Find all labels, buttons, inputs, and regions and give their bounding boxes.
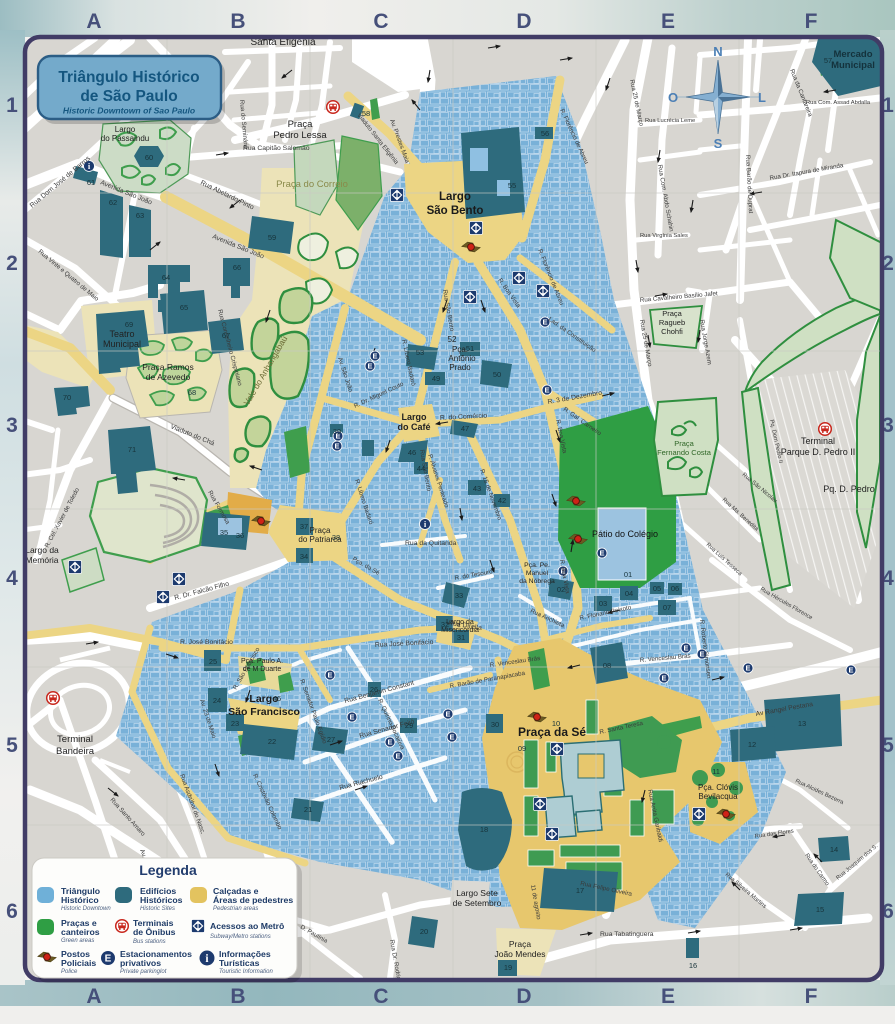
svg-text:Pátio do Colégio: Pátio do Colégio [592,529,658,539]
svg-text:São Francisco: São Francisco [228,706,300,718]
svg-text:14: 14 [830,845,838,854]
svg-text:Subway/Metro stations: Subway/Metro stations [210,934,271,940]
svg-text:08: 08 [603,661,611,670]
svg-text:56: 56 [541,129,549,138]
svg-text:6: 6 [6,900,18,923]
svg-text:06: 06 [671,584,679,593]
svg-text:de Setembro: de Setembro [453,898,502,908]
svg-text:Rua Com. Assad Abdalla: Rua Com. Assad Abdalla [806,100,871,106]
svg-text:João Mendes: João Mendes [494,949,545,959]
svg-text:Private parkinglot: Private parkinglot [120,969,167,975]
svg-text:O: O [668,90,678,105]
svg-text:D: D [516,10,531,33]
svg-text:F: F [805,10,818,33]
svg-text:Historic Downtown of Sao Paulo: Historic Downtown of Sao Paulo [63,106,195,116]
svg-text:21: 21 [304,805,312,814]
svg-text:Rua da Quitanda: Rua da Quitanda [405,540,457,547]
svg-text:16: 16 [689,961,697,970]
svg-text:49: 49 [432,374,440,383]
svg-text:47: 47 [461,424,469,433]
svg-text:70: 70 [63,393,71,402]
svg-text:S: S [714,136,723,151]
svg-text:29: 29 [405,721,413,730]
svg-text:1: 1 [6,94,18,117]
svg-text:E: E [661,985,675,1008]
svg-text:07: 07 [663,603,671,612]
svg-text:34: 34 [300,552,308,561]
svg-text:09: 09 [518,744,526,753]
svg-text:59: 59 [268,233,276,242]
svg-text:Teatro: Teatro [109,329,134,339]
svg-text:67: 67 [222,331,230,340]
svg-text:57: 57 [824,56,832,65]
svg-text:15: 15 [816,905,824,914]
svg-text:30: 30 [491,720,499,729]
svg-text:17: 17 [576,886,584,895]
svg-text:F: F [805,985,818,1008]
svg-text:58: 58 [362,109,370,118]
svg-text:privativos: privativos [120,958,161,968]
svg-text:36: 36 [236,531,244,540]
svg-text:60: 60 [145,153,153,162]
svg-text:63: 63 [136,211,144,220]
svg-text:01: 01 [624,570,632,579]
svg-text:Policiais: Policiais [61,958,96,968]
svg-text:da Nóbrega: da Nóbrega [519,578,555,585]
svg-text:C: C [373,10,388,33]
svg-text:2: 2 [6,252,18,275]
svg-text:22: 22 [268,737,276,746]
svg-text:de Azevedo: de Azevedo [146,372,191,382]
svg-text:Largo Sete: Largo Sete [456,888,498,898]
svg-text:12: 12 [748,740,756,749]
svg-text:02: 02 [557,585,565,594]
svg-text:Pça. Clóvis: Pça. Clóvis [698,783,738,792]
svg-text:Acessos ao Metrô: Acessos ao Metrô [210,921,284,931]
svg-text:B: B [230,985,245,1008]
svg-text:10: 10 [552,719,560,728]
svg-text:Praça do Correio: Praça do Correio [276,179,348,190]
svg-text:27: 27 [327,735,335,744]
svg-text:Touristic Information: Touristic Information [219,969,273,975]
svg-text:05: 05 [653,584,661,593]
svg-text:42: 42 [498,496,506,505]
svg-text:Históricos: Históricos [140,895,183,905]
svg-text:64: 64 [162,273,170,282]
svg-text:Terminal: Terminal [801,436,835,446]
svg-text:Pedestrian areas: Pedestrian areas [213,906,258,912]
svg-text:A: A [86,10,101,33]
svg-text:Rua Tabatinguera: Rua Tabatinguera [600,931,654,938]
svg-text:Pq. D. Pedro: Pq. D. Pedro [823,484,875,494]
svg-text:R. José Bonifácio: R. José Bonifácio [180,639,233,646]
svg-text:24: 24 [213,696,221,705]
svg-text:32: 32 [441,620,449,629]
svg-text:Rua Lucrécia Leme: Rua Lucrécia Leme [645,118,695,124]
svg-text:65: 65 [180,303,188,312]
svg-text:do Café: do Café [397,422,430,432]
svg-text:Praça: Praça [310,526,331,535]
svg-text:Praça Ramos: Praça Ramos [142,362,194,372]
svg-text:20: 20 [420,927,428,936]
svg-text:71: 71 [128,445,136,454]
svg-text:Chohfi: Chohfi [661,327,683,336]
svg-text:Áreas de pedestres: Áreas de pedestres [213,895,293,905]
svg-text:Police: Police [61,969,78,975]
svg-text:de São Paulo: de São Paulo [80,88,177,105]
svg-text:Municipal: Municipal [831,60,875,71]
svg-text:Terminal: Terminal [57,734,93,745]
svg-text:50: 50 [493,370,501,379]
svg-text:19: 19 [504,963,512,972]
svg-text:35: 35 [220,528,228,537]
svg-text:37: 37 [300,522,308,531]
svg-text:Turísticas: Turísticas [219,958,260,968]
svg-text:46: 46 [273,694,281,703]
svg-text:Bevilacqua: Bevilacqua [698,792,738,801]
svg-text:Praça: Praça [288,119,314,130]
svg-text:Rua Virgínia Sales: Rua Virgínia Sales [640,233,688,239]
svg-text:Parque D. Pedro II: Parque D. Pedro II [781,447,856,457]
svg-text:Praça: Praça [674,439,694,448]
svg-text:Bandeira: Bandeira [56,746,95,757]
svg-text:03: 03 [599,599,607,608]
svg-text:44: 44 [417,464,425,473]
svg-text:L: L [758,90,766,105]
svg-text:62: 62 [109,198,117,207]
svg-text:Prado: Prado [449,363,471,372]
svg-text:Legenda: Legenda [139,862,197,878]
svg-text:Pedro Lessa: Pedro Lessa [273,130,327,141]
svg-text:Historic Downtown: Historic Downtown [61,906,111,912]
svg-text:46: 46 [408,448,416,457]
svg-text:26: 26 [370,685,378,694]
svg-text:Largo da: Largo da [25,545,59,555]
svg-text:Bus stations: Bus stations [133,939,166,945]
svg-text:São Bento: São Bento [427,205,484,217]
svg-text:68: 68 [188,388,196,397]
svg-text:18: 18 [480,825,488,834]
svg-text:canteiros: canteiros [61,927,100,937]
svg-text:38: 38 [332,533,340,542]
svg-text:Mercado: Mercado [833,49,872,60]
svg-text:Triângulo Histórico: Triângulo Histórico [58,69,199,86]
svg-text:Antônio: Antônio [448,354,476,363]
svg-text:Fernando Costa: Fernando Costa [657,448,712,457]
svg-text:N: N [713,44,722,59]
svg-text:3: 3 [6,414,18,437]
svg-text:13: 13 [798,719,806,728]
svg-text:51: 51 [466,344,474,353]
svg-text:52: 52 [448,335,457,344]
svg-text:E: E [661,10,675,33]
svg-text:Manuel: Manuel [526,570,549,577]
svg-text:Largo: Largo [401,412,427,422]
svg-text:C: C [373,985,388,1008]
svg-text:Praça: Praça [662,309,682,318]
svg-text:Praça: Praça [509,939,531,949]
svg-text:do Passaindu: do Passaindu [101,134,149,143]
svg-text:4: 4 [6,567,18,590]
svg-text:66: 66 [233,263,241,272]
svg-text:Rua Capitão Salomão: Rua Capitão Salomão [243,145,310,152]
svg-text:25: 25 [209,657,217,666]
svg-text:69: 69 [125,320,133,329]
svg-text:de Ônibus: de Ônibus [133,926,176,937]
svg-text:Memória: Memória [25,555,58,565]
svg-text:A: A [86,985,101,1008]
svg-text:23: 23 [231,719,239,728]
svg-text:B: B [230,10,245,33]
svg-text:Historic Sites: Historic Sites [140,906,175,912]
svg-text:61: 61 [87,178,95,187]
svg-text:04: 04 [625,589,633,598]
svg-text:43: 43 [473,484,481,493]
svg-text:31: 31 [457,633,465,642]
svg-text:53: 53 [416,348,424,357]
svg-text:5: 5 [6,734,18,757]
svg-text:Largo: Largo [439,191,471,203]
svg-text:33: 33 [455,591,463,600]
svg-text:11: 11 [712,767,720,776]
svg-text:55: 55 [508,181,516,190]
svg-text:Histórico: Histórico [61,895,99,905]
svg-text:Municipal: Municipal [103,339,141,349]
svg-text:D: D [516,985,531,1008]
svg-text:Ragueb: Ragueb [659,318,685,327]
svg-text:Pça. Pe.: Pça. Pe. [524,562,550,569]
svg-text:Largo: Largo [115,125,136,134]
svg-text:39: 39 [333,427,341,436]
svg-text:Green areas: Green areas [61,938,94,944]
